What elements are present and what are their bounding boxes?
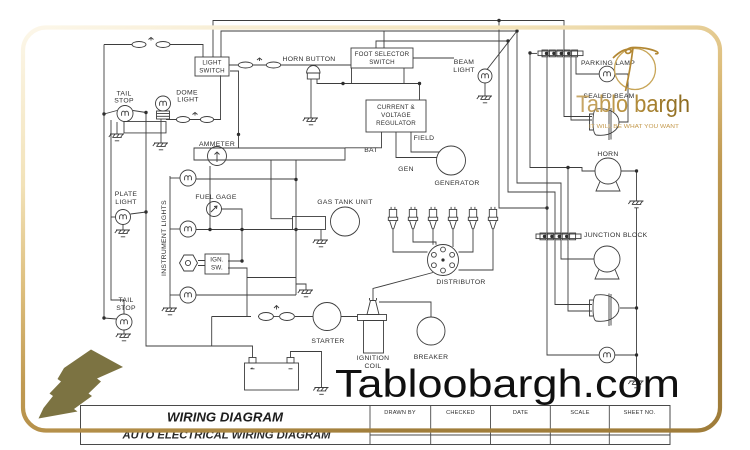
svg-text:Tabloobargh.com: Tabloobargh.com [335,363,680,406]
svg-text:DATE: DATE [513,410,528,416]
svg-text:AMMETER: AMMETER [199,141,235,148]
svg-text:LIGHT: LIGHT [453,67,475,74]
svg-text:FOOT SELECTOR: FOOT SELECTOR [355,51,410,58]
svg-text:SWITCH: SWITCH [369,59,395,66]
svg-text:BREAKER: BREAKER [414,354,449,361]
svg-text:IGN.: IGN. [210,257,224,264]
svg-text:IGNITION: IGNITION [357,355,390,362]
svg-text:SWITCH: SWITCH [199,67,225,74]
svg-text:BEAM: BEAM [454,59,475,66]
svg-text:FUEL GAGE: FUEL GAGE [195,194,237,201]
svg-text:INSTRUMENT LIGHTS: INSTRUMENT LIGHTS [161,200,168,276]
svg-text:STARTER: STARTER [311,338,344,345]
svg-text:PLATE: PLATE [115,191,138,198]
svg-text:GAS TANK UNIT: GAS TANK UNIT [317,199,372,206]
svg-text:IT WILL BE WHAT YOU WANT: IT WILL BE WHAT YOU WANT [589,124,680,130]
svg-text:CHECKED: CHECKED [446,410,475,416]
svg-text:Tablo bargh: Tablo bargh [576,91,690,118]
svg-text:DRAWN BY: DRAWN BY [384,410,416,416]
svg-text:SHEET NO.: SHEET NO. [624,410,656,416]
svg-text:JUNCTION BLOCK: JUNCTION BLOCK [584,232,648,239]
svg-text:STOP: STOP [116,305,136,312]
svg-text:SW.: SW. [211,265,223,272]
svg-text:REGULATOR: REGULATOR [376,120,416,127]
svg-text:GENERATOR: GENERATOR [434,180,479,187]
svg-text:BAT: BAT [364,147,378,154]
svg-text:GEN: GEN [398,166,414,173]
svg-text:CURRENT &: CURRENT & [377,104,415,111]
svg-text:LIGHT: LIGHT [115,199,137,206]
svg-text:HORN: HORN [597,151,618,158]
svg-text:STOP: STOP [114,98,134,105]
svg-text:DISTRIBUTOR: DISTRIBUTOR [436,279,485,286]
svg-text:WIRING DIAGRAM: WIRING DIAGRAM [167,411,284,425]
svg-text:SCALE: SCALE [570,410,589,416]
svg-text:FIELD: FIELD [414,135,435,142]
svg-text:PARKING LAMP: PARKING LAMP [581,60,635,67]
svg-text:VOLTAGE: VOLTAGE [381,112,411,119]
svg-text:LIGHT: LIGHT [202,59,221,66]
svg-text:LIGHT: LIGHT [177,97,199,104]
svg-text:DOME: DOME [176,90,198,97]
svg-text:TAIL: TAIL [118,297,133,304]
svg-text:HORN BUTTON: HORN BUTTON [282,56,335,63]
svg-text:TAIL: TAIL [116,91,131,98]
